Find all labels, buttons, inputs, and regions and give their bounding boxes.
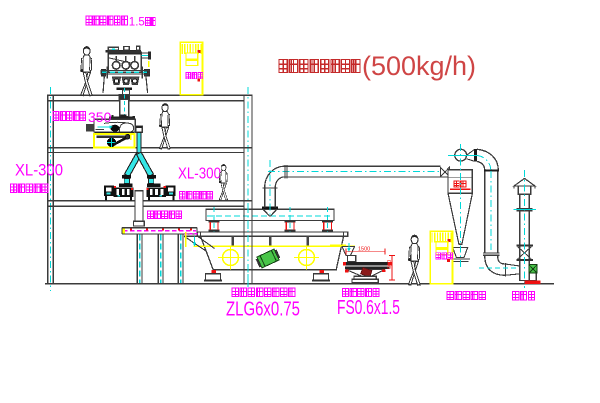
svg-text:XL-300: XL-300 [15,162,63,180]
svg-text:(500kg/h): (500kg/h) [362,51,476,81]
svg-text:1500: 1500 [358,247,370,253]
svg-text:350: 350 [88,109,112,125]
svg-text:ZLG6x0.75: ZLG6x0.75 [226,299,300,321]
svg-text:FS0.6x1.5: FS0.6x1.5 [337,297,400,319]
svg-text:600: 600 [387,260,393,269]
svg-text:1.5: 1.5 [129,16,145,28]
svg-text:XL-300: XL-300 [178,166,221,183]
